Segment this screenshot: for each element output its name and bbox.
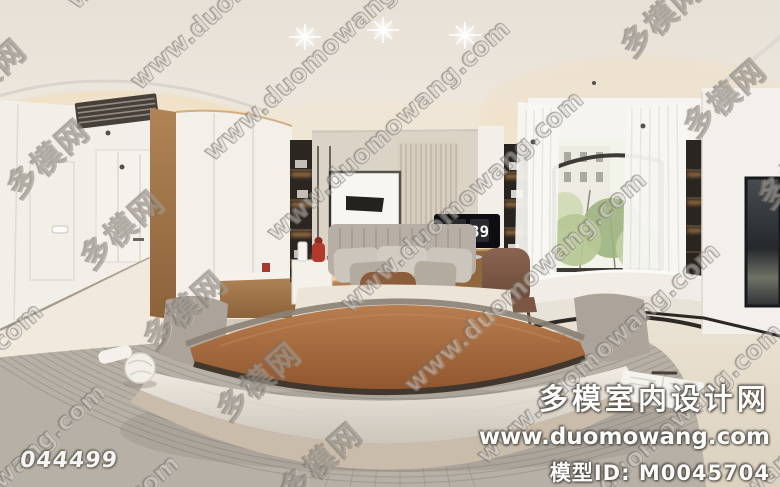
brand-name-cn: 多模室内设计网	[479, 376, 770, 418]
image-id-label: 044499	[18, 448, 119, 473]
brand-url: www.duomowang.com	[479, 424, 770, 450]
lower-cabinet	[220, 276, 292, 318]
knot-ball	[125, 353, 155, 383]
pen	[651, 371, 677, 374]
towel-bar	[52, 226, 68, 233]
wall-art-brush	[346, 196, 384, 212]
door-handle	[133, 238, 144, 241]
model-id-label: 模型ID: M0045704	[479, 457, 770, 487]
red-cup	[262, 263, 270, 272]
dark-artwork	[746, 178, 780, 306]
table-lamp	[298, 242, 307, 261]
brand-block: 多模室内设计网 www.duomowang.com 模型ID: M0045704	[479, 376, 770, 487]
red-figurine	[312, 243, 325, 262]
panorama-image: 10 39	[0, 0, 780, 487]
bed-side-right	[574, 293, 650, 361]
wardrobe-wood-side	[150, 108, 176, 320]
hallway-door	[96, 150, 154, 262]
